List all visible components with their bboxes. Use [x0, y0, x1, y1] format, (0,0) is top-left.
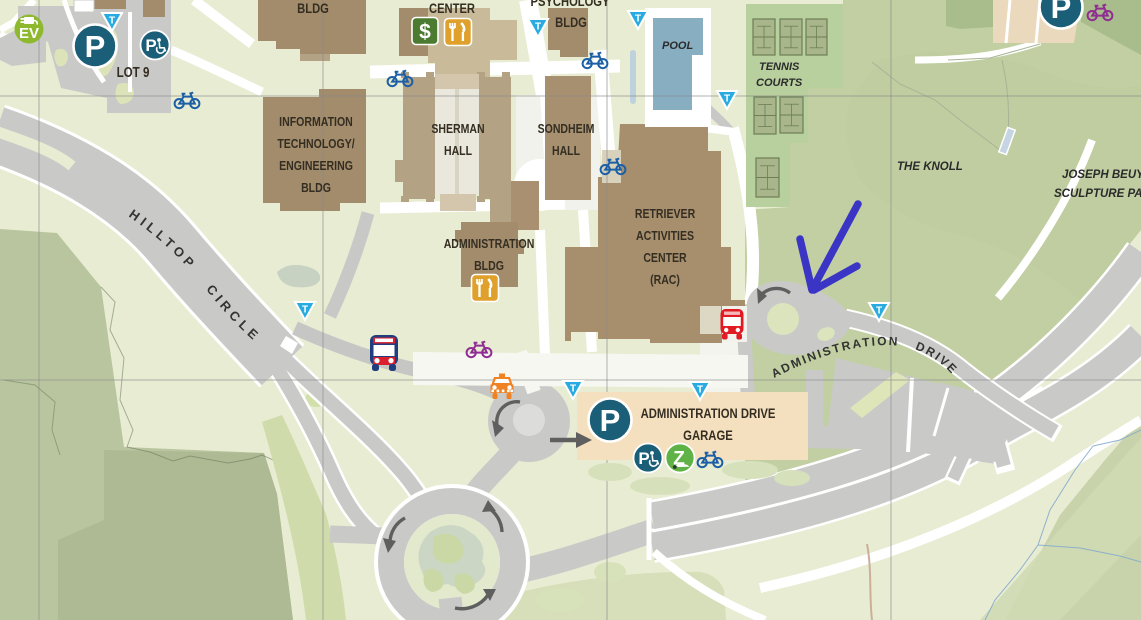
svg-text:BLDG: BLDG: [555, 15, 587, 30]
svg-text:SONDHEIM: SONDHEIM: [538, 121, 595, 136]
svg-text:ADMINISTRATION DRIVE: ADMINISTRATION DRIVE: [641, 406, 776, 421]
svg-text:GARAGE: GARAGE: [683, 428, 733, 443]
svg-text:POOL: POOL: [662, 40, 693, 52]
svg-text:BLDG: BLDG: [297, 1, 329, 16]
svg-text:(RAC): (RAC): [650, 272, 680, 287]
svg-text:HALL: HALL: [444, 143, 472, 158]
svg-text:SHERMAN: SHERMAN: [431, 121, 484, 136]
svg-text:TENNIS: TENNIS: [759, 61, 800, 73]
svg-text:TECHNOLOGY/: TECHNOLOGY/: [277, 136, 355, 151]
svg-text:COURTS: COURTS: [756, 77, 803, 89]
svg-text:LOT 9: LOT 9: [117, 64, 150, 81]
svg-text:BLDG: BLDG: [474, 258, 504, 273]
svg-text:SCULPTURE PAR: SCULPTURE PAR: [1054, 188, 1141, 200]
svg-text:ENGINEERING: ENGINEERING: [279, 158, 353, 173]
svg-text:BLDG: BLDG: [301, 180, 331, 195]
svg-text:JOSEPH BEUYS: JOSEPH BEUYS: [1062, 169, 1141, 181]
svg-text:ACTIVITIES: ACTIVITIES: [636, 228, 694, 243]
svg-text:CENTER: CENTER: [643, 250, 687, 265]
svg-text:CENTER: CENTER: [429, 1, 475, 16]
svg-text:HALL: HALL: [552, 143, 580, 158]
svg-text:RETRIEVER: RETRIEVER: [635, 206, 696, 221]
svg-text:INFORMATION: INFORMATION: [279, 114, 353, 129]
svg-text:PSYCHOLOGY: PSYCHOLOGY: [531, 0, 610, 9]
svg-text:THE KNOLL: THE KNOLL: [897, 161, 963, 173]
svg-text:ADMINISTRATION: ADMINISTRATION: [444, 236, 535, 251]
